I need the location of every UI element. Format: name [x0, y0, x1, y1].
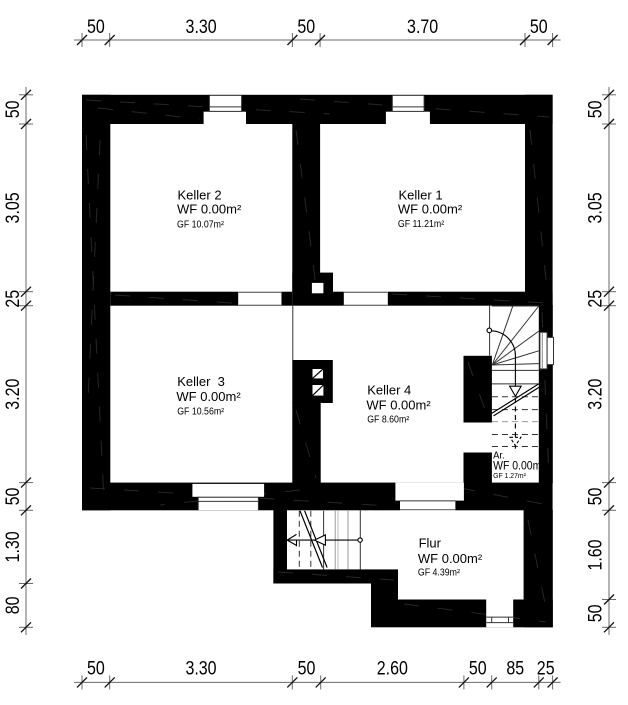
- svg-text:50: 50: [297, 16, 315, 38]
- svg-text:25: 25: [584, 290, 606, 308]
- svg-text:Keller 3: Keller 3: [177, 374, 225, 389]
- svg-text:50: 50: [530, 16, 548, 38]
- svg-text:1.30: 1.30: [1, 531, 23, 562]
- svg-text:GF 10.07m²: GF 10.07m²: [177, 218, 224, 230]
- svg-text:Keller 2: Keller 2: [178, 188, 222, 203]
- svg-text:80: 80: [1, 596, 23, 614]
- svg-text:50: 50: [584, 100, 606, 118]
- svg-text:25: 25: [537, 657, 555, 679]
- svg-text:50: 50: [298, 657, 316, 679]
- svg-text:50: 50: [1, 100, 23, 118]
- svg-text:WF 0.00m²: WF 0.00m²: [177, 202, 242, 217]
- svg-text:WF 0.00m²: WF 0.00m²: [418, 551, 483, 566]
- svg-text:3.20: 3.20: [1, 379, 23, 410]
- svg-text:WF 0.00m²: WF 0.00m²: [176, 389, 241, 404]
- svg-text:GF 10.56m²: GF 10.56m²: [177, 405, 224, 417]
- svg-text:Keller 1: Keller 1: [399, 188, 443, 203]
- svg-text:50: 50: [1, 488, 23, 506]
- svg-text:WF 0.00m²: WF 0.00m²: [366, 398, 431, 413]
- svg-text:Keller 4: Keller 4: [367, 383, 411, 398]
- svg-text:50: 50: [584, 604, 606, 622]
- svg-text:WF 0.00m²: WF 0.00m²: [398, 202, 463, 217]
- svg-text:3.20: 3.20: [584, 379, 606, 410]
- svg-text:GF 1.27m²: GF 1.27m²: [493, 472, 526, 480]
- svg-text:50: 50: [87, 16, 105, 38]
- svg-text:2.60: 2.60: [377, 657, 408, 679]
- svg-text:1.60: 1.60: [584, 539, 606, 570]
- svg-text:3.05: 3.05: [1, 192, 23, 223]
- svg-text:3.05: 3.05: [584, 192, 606, 223]
- svg-text:50: 50: [584, 488, 606, 506]
- svg-text:Flur: Flur: [419, 536, 442, 551]
- svg-text:3.70: 3.70: [407, 16, 438, 38]
- svg-text:85: 85: [506, 657, 524, 679]
- svg-text:GF 4.39m²: GF 4.39m²: [418, 566, 460, 578]
- svg-text:3.30: 3.30: [185, 657, 216, 679]
- svg-text:50: 50: [469, 657, 487, 679]
- svg-text:3.30: 3.30: [186, 16, 217, 38]
- svg-text:WF 0.00m²: WF 0.00m²: [493, 460, 545, 473]
- svg-text:GF 11.21m²: GF 11.21m²: [398, 217, 444, 229]
- svg-text:25: 25: [1, 290, 23, 308]
- svg-text:GF 8.60m²: GF 8.60m²: [367, 413, 409, 425]
- svg-text:50: 50: [87, 657, 105, 679]
